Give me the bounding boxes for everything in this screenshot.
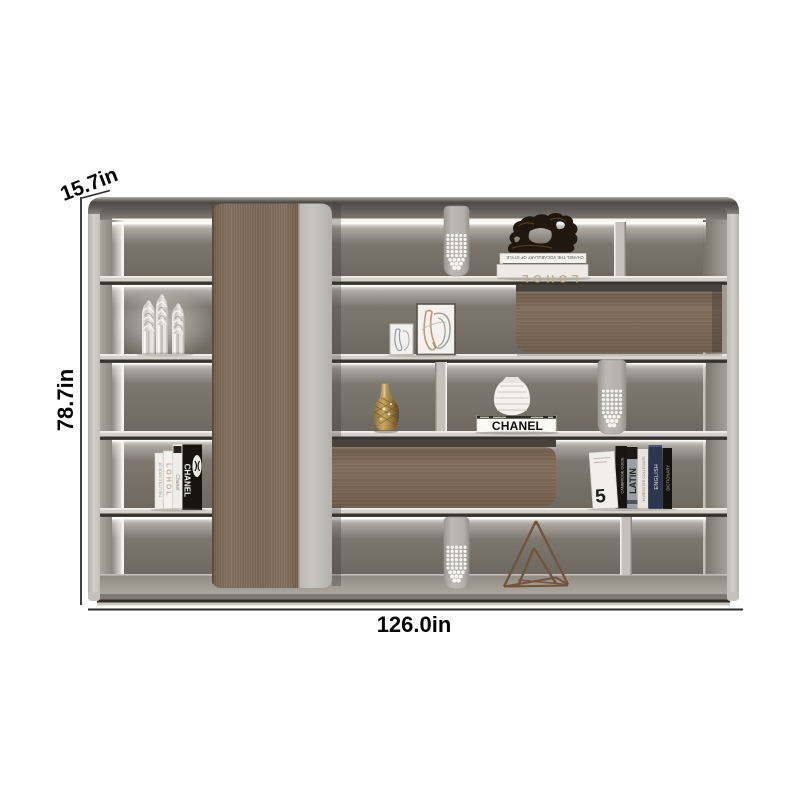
svg-text:CAMBRIDGE GUIDE: CAMBRIDGE GUIDE xyxy=(621,457,625,494)
svg-text:DICTIONARY: DICTIONARY xyxy=(665,465,670,491)
svg-text:ENGLISH: ENGLISH xyxy=(654,464,660,490)
svg-text:THE LITTLE BOOK OF: THE LITTLE BOOK OF xyxy=(158,462,162,497)
svg-text:CHANEL THE VOCABULARY OF STYLE: CHANEL THE VOCABULARY OF STYLE xyxy=(506,255,584,260)
svg-text:LOHOL: LOHOL xyxy=(164,463,171,498)
svg-text:CHANEL: CHANEL xyxy=(183,464,192,497)
svg-text:LATIN: LATIN xyxy=(628,468,638,494)
svg-text:M WEBSTER COLLEGIATE: M WEBSTER COLLEGIATE xyxy=(642,456,646,502)
svg-text:78.7in: 78.7in xyxy=(53,369,78,431)
svg-text:Chanel: Chanel xyxy=(174,474,180,491)
svg-text:CHANEL: CHANEL xyxy=(492,419,543,433)
svg-text:126.0in: 126.0in xyxy=(377,612,452,637)
svg-text:5: 5 xyxy=(594,486,606,508)
svg-text:LOHOL: LOHOL xyxy=(518,272,579,284)
